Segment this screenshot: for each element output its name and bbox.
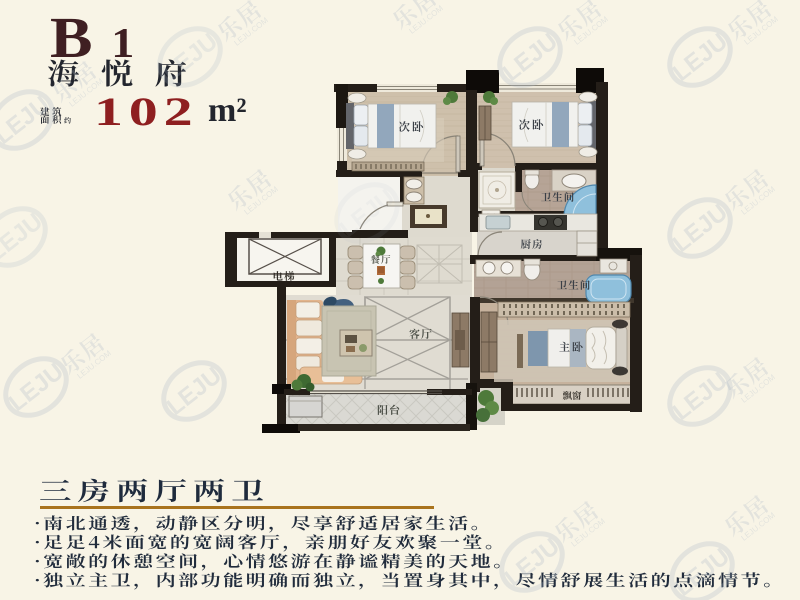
svg-text:次卧: 次卧 — [519, 117, 546, 133]
svg-text:厨房: 厨房 — [521, 237, 544, 252]
svg-text:卫生间: 卫生间 — [557, 278, 592, 293]
svg-text:阳台: 阳台 — [377, 402, 401, 418]
svg-text:卫生间: 卫生间 — [541, 190, 576, 205]
svg-text:主卧: 主卧 — [559, 339, 585, 355]
svg-text:次卧: 次卧 — [399, 119, 426, 135]
svg-text:客厅: 客厅 — [409, 326, 433, 342]
svg-text:飘窗: 飘窗 — [562, 388, 582, 402]
svg-text:电梯: 电梯 — [273, 269, 296, 284]
svg-text:餐厅: 餐厅 — [370, 252, 391, 266]
